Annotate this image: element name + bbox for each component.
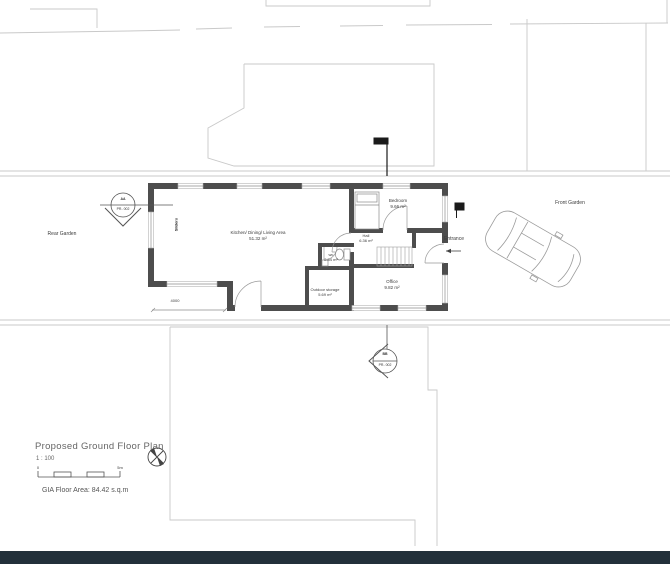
taskbar — [0, 551, 670, 564]
section-marker-bb-ref-label: PR- 002 — [370, 363, 400, 368]
room-label-office: Office9.82 m² — [364, 279, 420, 291]
room-label-outdoor-storage: Outdoor storage5.69 m² — [294, 287, 356, 297]
scale-bar-zero-label: 0 — [33, 465, 43, 470]
room-label-hall: Hall6.36 m² — [344, 233, 388, 243]
gia-floor-area: GIA Floor Area: 84.42 s.q.m — [42, 486, 242, 495]
drawing-scale: 1 : 100 — [36, 456, 96, 464]
room-label-kitchen: Kitchen/ Dining/ Living Area51.32 m² — [198, 230, 318, 242]
entrance-arrow-icon — [446, 249, 461, 253]
dimension-line — [151, 308, 227, 312]
site-boundary-lines — [0, 0, 670, 546]
section-marker-bb-top-label: BB — [375, 352, 395, 357]
wall-note-label: Sliders — [173, 207, 178, 243]
desktop-screen: Kitchen/ Dining/ Living Area51.32 m² Bed… — [0, 0, 670, 564]
stairs — [377, 247, 412, 266]
section-marker-aa-top-label: AA — [113, 197, 133, 202]
scale-bar — [38, 471, 120, 477]
car — [478, 202, 588, 297]
front-garden-label: Front Garden — [538, 200, 602, 207]
room-label-wc: wc2.54 m² — [318, 252, 344, 262]
section-marker-aa-ref-label: PR- 002 — [108, 207, 138, 212]
drawing-title: Proposed Ground Floor Plan — [35, 441, 235, 453]
dimension-label: 4000 — [160, 298, 190, 303]
entrance-label: Entrance — [432, 236, 476, 243]
room-label-bedroom: Bedroom9.66 m² — [369, 198, 427, 210]
floor-plan-canvas — [0, 0, 670, 564]
neighbour-building-top — [208, 64, 434, 166]
rear-garden-label: Rear Garden — [30, 231, 94, 238]
scale-bar-end-label: 5m — [113, 465, 127, 470]
road-edge-lines — [0, 171, 670, 325]
